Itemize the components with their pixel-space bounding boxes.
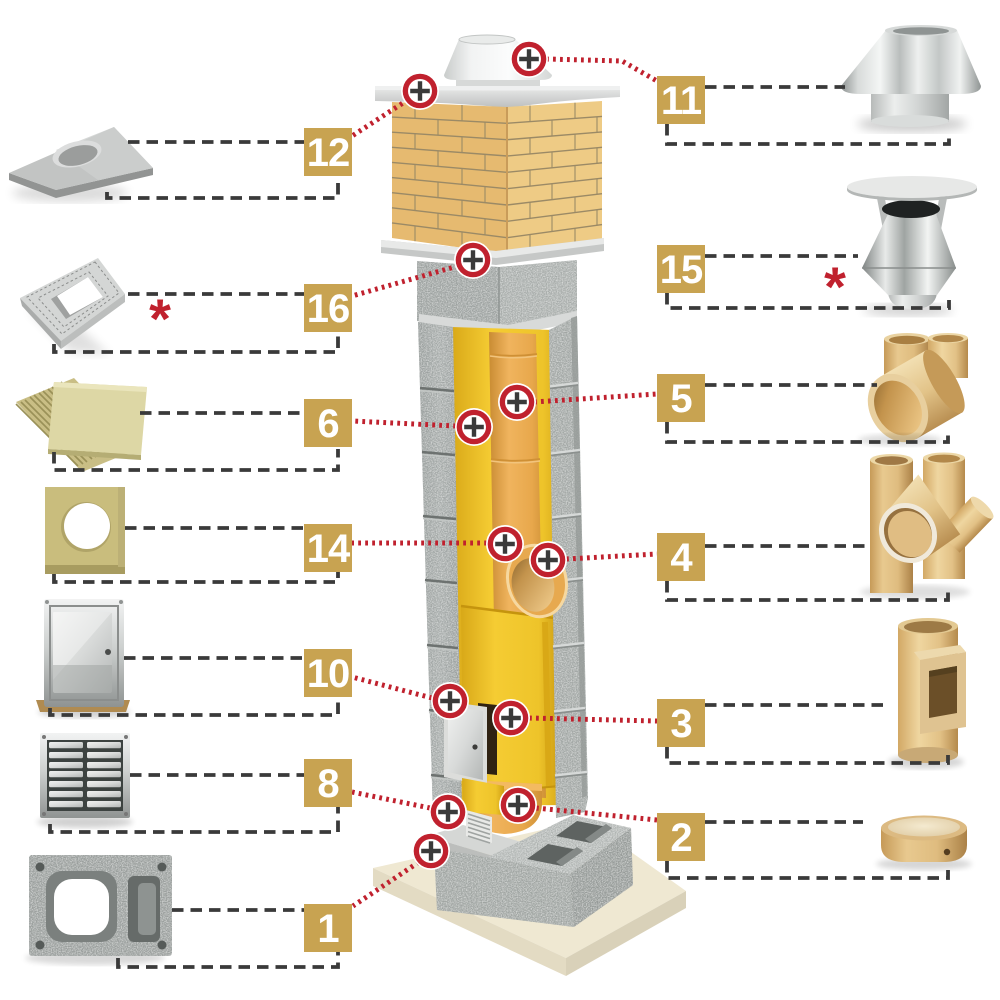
- svg-text:11: 11: [661, 79, 702, 123]
- svg-text:16: 16: [307, 287, 350, 331]
- svg-text:6: 6: [317, 402, 338, 446]
- svg-text:12: 12: [307, 131, 350, 175]
- svg-text:8: 8: [317, 762, 339, 806]
- svg-text:10: 10: [307, 652, 350, 696]
- svg-text:1: 1: [317, 907, 339, 951]
- svg-text:3: 3: [670, 702, 691, 746]
- svg-text:4: 4: [670, 536, 693, 580]
- svg-text:5: 5: [670, 377, 692, 421]
- svg-text:*: *: [149, 287, 171, 350]
- svg-text:2: 2: [670, 816, 691, 860]
- svg-text:15: 15: [660, 248, 703, 292]
- svg-text:14: 14: [307, 527, 351, 571]
